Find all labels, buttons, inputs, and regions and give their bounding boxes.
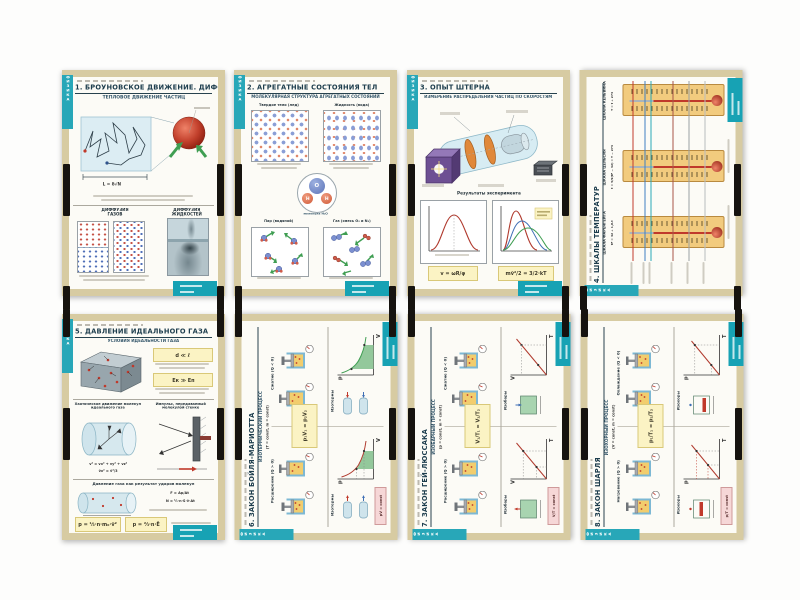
divider: [73, 399, 214, 400]
law-formula: p₁/T₁ = p₂/T₂: [637, 404, 663, 448]
stand-clip: [408, 164, 415, 216]
caption-line: [83, 279, 145, 281]
caption-line: [155, 363, 209, 365]
piston-cylinder-diagram: [624, 345, 660, 371]
imprint-line: [77, 324, 143, 326]
gas-pressure-diagram: [685, 391, 719, 417]
stand-clip: [217, 286, 224, 310]
series-tab-label: ФИЗИКА: [65, 75, 69, 105]
imprint-line: [417, 459, 419, 525]
divider: [500, 327, 501, 527]
random-walk-diagram: [73, 105, 214, 185]
const-chip: V/T = const: [547, 487, 559, 525]
svg-text:V: V: [376, 438, 382, 442]
pressure-formula-1: p = ⅓·n·m₀·v̄²: [75, 517, 121, 532]
poster-content: 2. АГРЕГАТНЫЕ СОСТОЯНИЯ ТЕЛ МОЛЕКУЛЯРНАЯ…: [241, 77, 390, 289]
poster-subtitle: МОЛЕКУЛЯРНАЯ СТРУКТУРА АГРЕГАТНЫХ СОСТОЯ…: [241, 95, 390, 106]
stand-clip: [735, 408, 742, 460]
isobar-graph: V T: [506, 435, 554, 487]
piston-cylinder-diagram: [451, 491, 487, 517]
svg-text:p: p: [337, 480, 343, 484]
process-header: ИЗОБАРНЫЙ ПРОЦЕСС: [431, 321, 442, 533]
mini-cylinders-icon: [339, 391, 373, 417]
stand-clip: [581, 408, 588, 460]
energy-formula: mv̄²/2 = 3/2·kT: [498, 266, 554, 281]
reference-label: [642, 262, 644, 284]
series-tab: ФИЗИКА: [584, 285, 638, 296]
publisher-badge-icon: [727, 78, 742, 122]
stand-clip: [408, 286, 415, 310]
scale-name-celsius: ШКАЛА ЦЕЛЬСИЯ: [602, 145, 613, 189]
reference-line-body: [644, 81, 645, 261]
piston-cylinder-diagram: [278, 491, 314, 517]
stand-clip: [735, 309, 742, 337]
poster-title: 3. ОПЫТ ШТЕРНА: [420, 83, 557, 94]
gas-box-separated: [77, 221, 109, 273]
caption-line: [329, 277, 373, 279]
caption-line: [329, 163, 373, 165]
force-formula: F = Δp/Δt: [145, 491, 215, 502]
caption-line: [727, 139, 729, 173]
series-tab: ФИЗИКА: [234, 75, 245, 129]
stand-clip: [63, 309, 70, 337]
stand-clip: [389, 408, 396, 460]
thermometer-bulb: [711, 95, 722, 106]
caption-line: [261, 167, 297, 169]
ideality-condition-2: Eк ≫ Eп: [153, 373, 213, 387]
stand-clip: [235, 309, 242, 337]
poster-content: 8. ЗАКОН ШАРЛЯ ИЗОХОРНЫЙ ПРОЦЕСС (V = co…: [587, 321, 736, 533]
gas-pressure-diagram: [685, 495, 719, 521]
stand-clip: [408, 309, 415, 337]
stand-clip: [580, 164, 587, 216]
stand-clip: [580, 286, 587, 310]
reference-line-nitrogen: [688, 81, 689, 261]
poster-boyle-mariotte: ФИЗИКА 6. ЗАКОН БОЙЛЯ-МАРИОТТА ИЗОТЕРМИЧ…: [234, 314, 397, 540]
divider: [673, 327, 674, 527]
poster-brownian-motion: ФИЗИКА 1. БРОУНОВСКОЕ ДВИЖЕНИЕ. ДИФФУЗИЯ…: [62, 70, 225, 296]
apparatus-diagram: [418, 105, 559, 189]
piston-cylinder-diagram: [624, 491, 660, 517]
poster-ideal-gas-pressure: ФИЗИКА 5. ДАВЛЕНИЕ ИДЕАЛЬНОГО ГАЗА УСЛОВ…: [62, 314, 225, 540]
caption-line: [727, 205, 729, 239]
liquid-diffusion-photo: [167, 218, 209, 276]
reference-label: [630, 262, 632, 284]
series-tab: ФИЗИКА: [239, 529, 293, 540]
reference-line-dry-ice: [672, 81, 673, 261]
stand-clip: [408, 408, 415, 460]
reference-line-boiling: [632, 81, 633, 261]
caption-line: [101, 199, 185, 201]
stand-clip: [562, 286, 569, 310]
cylinder-impacts-diagram: [73, 490, 143, 516]
poster-content: 3. ОПЫТ ШТЕРНА ИЗМЕРЕНИЕ РАСПРЕДЕЛЕНИЯ Ч…: [414, 77, 563, 289]
svg-text:T: T: [722, 334, 728, 338]
ideality-condition-1: d ≪ ℓ: [153, 348, 213, 362]
reference-label: [702, 262, 704, 284]
piston-cylinder-diagram: [278, 345, 314, 371]
piston-cylinder-diagram: [624, 453, 660, 479]
series-tab: ФИЗИКА: [412, 529, 466, 540]
poster-charles-law: ФИЗИКА 8. ЗАКОН ШАРЛЯ ИЗОХОРНЫЙ ПРОЦЕСС …: [580, 314, 743, 540]
divider: [73, 479, 214, 480]
reference-label: [670, 262, 672, 284]
stand-clip: [581, 309, 588, 337]
scale-formula-kelvin: T = t + 273: [610, 79, 621, 123]
oxygen-atom: O: [309, 178, 325, 194]
stand-clip: [562, 309, 569, 337]
poster-content: 6. ЗАКОН БОЙЛЯ-МАРИОТТА ИЗОТЕРМИЧЕСКИЙ П…: [241, 321, 390, 533]
law-formula: V₁/T₁ = V₂/T₂: [464, 404, 490, 448]
imprint-line: [77, 80, 143, 82]
poster-gay-lussac: ФИЗИКА 7. ЗАКОН ГЕЙ-ЛЮССАКА ИЗОБАРНЫЙ ПР…: [407, 314, 570, 540]
poster-content: 7. ЗАКОН ГЕЙ-ЛЮССАКА ИЗОБАРНЫЙ ПРОЦЕСС (…: [414, 321, 563, 533]
imprint-line: [244, 459, 246, 525]
process-header: ИЗОТЕРМИЧЕСКИЙ ПРОЦЕСС: [258, 321, 269, 533]
caption-line: [155, 388, 209, 390]
publisher-badge-icon: [518, 281, 562, 296]
imprint-line: [249, 80, 315, 82]
poster-title: 8. ЗАКОН ШАРЛЯ: [593, 327, 604, 527]
isochore-graph: p T: [679, 331, 727, 383]
stand-clip: [235, 164, 242, 216]
isotherm-graph: p V: [333, 331, 381, 383]
poster-title: 1. БРОУНОВСКОЕ ДВИЖЕНИЕ. ДИФФУЗИЯ: [75, 83, 212, 94]
caption-line: [159, 392, 205, 394]
stand-clip: [63, 286, 70, 310]
gas-box-3d: [75, 348, 147, 396]
divider: [327, 327, 328, 527]
poster-sheet: ФИЗИКА 1. БРОУНОВСКОЕ ДВИЖЕНИЕ. ДИФФУЗИЯ…: [62, 70, 225, 296]
svg-text:T: T: [549, 334, 555, 338]
reference-line-freezing: [650, 81, 651, 261]
cylinder-chaos-diagram: [75, 417, 141, 461]
stand-clip: [217, 164, 224, 216]
reference-label: [648, 262, 650, 284]
distribution-graph-multi: [492, 200, 559, 264]
poster-title: 4. ШКАЛЫ ТЕМПЕРАТУР: [592, 83, 603, 283]
scale-formula-fahrenheit: tF = 32 + 1,8·t: [610, 211, 621, 255]
poster-title: 7. ЗАКОН ГЕЙ-ЛЮССАКА: [420, 327, 431, 527]
stand-clip: [562, 164, 569, 216]
gas-volume-diagram: [512, 391, 546, 417]
publisher-badge-icon: [173, 525, 217, 540]
piston-cylinder-diagram: [451, 345, 487, 371]
svg-text:V: V: [510, 480, 516, 484]
svg-text:V: V: [510, 376, 516, 380]
svg-text:p: p: [337, 376, 343, 380]
hydrogen-atom: H: [321, 193, 332, 204]
velocity-formula: v² = vx² + vy² + vz²: [71, 462, 145, 473]
caption-line: [257, 277, 301, 279]
thermometer-bulb: [711, 227, 722, 238]
caption-line: [149, 509, 207, 511]
process-conditions: (V = const, m = const): [611, 321, 622, 533]
poster-sheet: ФИЗИКА 8. ЗАКОН ШАРЛЯ ИЗОХОРНЫЙ ПРОЦЕСС …: [580, 314, 743, 540]
poster-aggregate-states: ФИЗИКА 2. АГРЕГАТНЫЕ СОСТОЯНИЯ ТЕЛ МОЛЕК…: [234, 70, 397, 296]
svg-text:T: T: [722, 438, 728, 442]
stand-clip: [235, 408, 242, 460]
poster-wall: ФИЗИКА 1. БРОУНОВСКОЕ ДВИЖЕНИЕ. ДИФФУЗИЯ…: [0, 0, 800, 600]
svg-text:p: p: [683, 480, 689, 484]
law-formula: p₁V₁ = p₂V₂: [291, 404, 317, 448]
series-tab: ФИЗИКА: [407, 75, 418, 129]
poster-title: 2. АГРЕГАТНЫЕ СОСТОЯНИЯ ТЕЛ: [247, 83, 384, 94]
caption-line: [79, 275, 149, 277]
poster-content: 1. БРОУНОВСКОЕ ДВИЖЕНИЕ. ДИФФУЗИЯ ТЕПЛОВ…: [69, 77, 218, 289]
scale-formula-celsius: t = 5/9(tF − 32) = T − 273: [610, 145, 621, 189]
stand-clip: [562, 408, 569, 460]
pressure-formula-2: p = ⅔·n·Ē: [125, 517, 167, 532]
mini-cylinders-icon: [339, 495, 373, 521]
piston-cylinder-diagram: [451, 453, 487, 479]
publisher-badge-icon: [173, 281, 217, 296]
series-tab: ФИЗИКА: [585, 529, 639, 540]
wall-impulse-diagram: [149, 413, 212, 475]
stand-clip: [63, 164, 70, 216]
stand-clip: [217, 408, 224, 460]
imprint-line: [589, 215, 591, 281]
scale-name-fahrenheit: ШКАЛА ФАРЕНГЕЙТА: [602, 211, 613, 255]
poster-sheet: ФИЗИКА 3. ОПЫТ ШТЕРНА ИЗМЕРЕНИЕ РАСПРЕДЕ…: [407, 70, 570, 296]
reference-label: [686, 262, 688, 284]
svg-text:p: p: [683, 376, 689, 380]
poster-title: 5. ДАВЛЕНИЕ ИДЕАЛЬНОГО ГАЗА: [75, 327, 212, 338]
poster-content: 5. ДАВЛЕНИЕ ИДЕАЛЬНОГО ГАЗА УСЛОВИЯ ИДЕА…: [69, 321, 218, 533]
vapor-molecules-image: [251, 227, 309, 277]
publisher-badge-icon: [345, 281, 389, 296]
molecule-caption: молекула H₂O: [281, 212, 351, 223]
piston-cylinder-diagram: [278, 453, 314, 479]
caption-line: [333, 167, 369, 169]
caption-line: [257, 163, 301, 165]
stand-clip: [389, 164, 396, 216]
caption-line: [93, 195, 193, 197]
reference-line-absolute-zero: [704, 81, 705, 261]
process-conditions: (T = const, m = const): [265, 321, 276, 533]
gas-box-mixed: [113, 221, 145, 273]
hydrogen-atom: H: [302, 193, 313, 204]
poster-stern-experiment: ФИЗИКА 3. ОПЫТ ШТЕРНА ИЗМЕРЕНИЕ РАСПРЕДЕ…: [407, 70, 570, 296]
stand-clip: [734, 164, 741, 216]
stand-clip: [63, 408, 70, 460]
distribution-graph-single: [420, 200, 487, 264]
stand-clip: [217, 309, 224, 337]
poster-sheet: ФИЗИКА 2. АГРЕГАТНЫЕ СОСТОЯНИЯ ТЕЛ МОЛЕК…: [234, 70, 397, 296]
caption-line: [171, 522, 211, 524]
isotherm-graph: p V: [333, 435, 381, 487]
isobar-graph: V T: [506, 331, 554, 383]
stand-clip: [389, 309, 396, 337]
stern-formula: v = ωR/φ: [428, 266, 478, 281]
stand-clip: [235, 286, 242, 310]
process-header: ИЗОХОРНЫЙ ПРОЦЕСС: [604, 321, 615, 533]
scale-name-kelvin: ШКАЛА КЕЛЬВИНА: [602, 79, 613, 123]
svg-text:V: V: [376, 334, 382, 338]
poster-title: 6. ЗАКОН БОЙЛЯ-МАРИОТТА: [247, 327, 258, 527]
water-structure-image: [323, 110, 381, 162]
const-chip: pV = const: [374, 487, 386, 525]
poster-sheet: ФИЗИКА 6. ЗАКОН БОЙЛЯ-МАРИОТТА ИЗОТЕРМИЧ…: [234, 314, 397, 540]
divider: [73, 205, 214, 206]
thermometer-bulb: [711, 161, 722, 172]
const-chip: p/T = const: [720, 487, 732, 525]
svg-text:T: T: [549, 438, 555, 442]
poster-sheet: ФИЗИКА 7. ЗАКОН ГЕЙ-ЛЮССАКА ИЗОБАРНЫЙ ПР…: [407, 314, 570, 540]
poster-sheet: ФИЗИКА 4. ШКАЛЫ ТЕМПЕРАТУР ШКАЛА ФАРЕНГЕ…: [579, 70, 742, 296]
imprint-line: [422, 80, 488, 82]
poster-content: 4. ШКАЛЫ ТЕМПЕРАТУР ШКАЛА ФАРЕНГЕЙТА tF …: [586, 77, 735, 289]
isochore-graph: p T: [679, 435, 727, 487]
process-conditions: (p = const, m = const): [438, 321, 449, 533]
imprint-line: [590, 459, 592, 525]
series-tab: ФИЗИКА: [62, 75, 73, 129]
gas-molecules-image: [323, 227, 381, 277]
water-molecule-diagram: O H H: [297, 173, 337, 213]
stand-clip: [389, 286, 396, 310]
caption-line: [159, 367, 205, 369]
poster-sheet: ФИЗИКА 5. ДАВЛЕНИЕ ИДЕАЛЬНОГО ГАЗА УСЛОВ…: [62, 314, 225, 540]
gas-volume-diagram: [512, 495, 546, 521]
poster-temperature-scales: ФИЗИКА 4. ШКАЛЫ ТЕМПЕРАТУР ШКАЛА ФАРЕНГЕ…: [579, 70, 742, 296]
stand-clip: [734, 286, 741, 310]
ice-structure-image: [251, 110, 309, 162]
